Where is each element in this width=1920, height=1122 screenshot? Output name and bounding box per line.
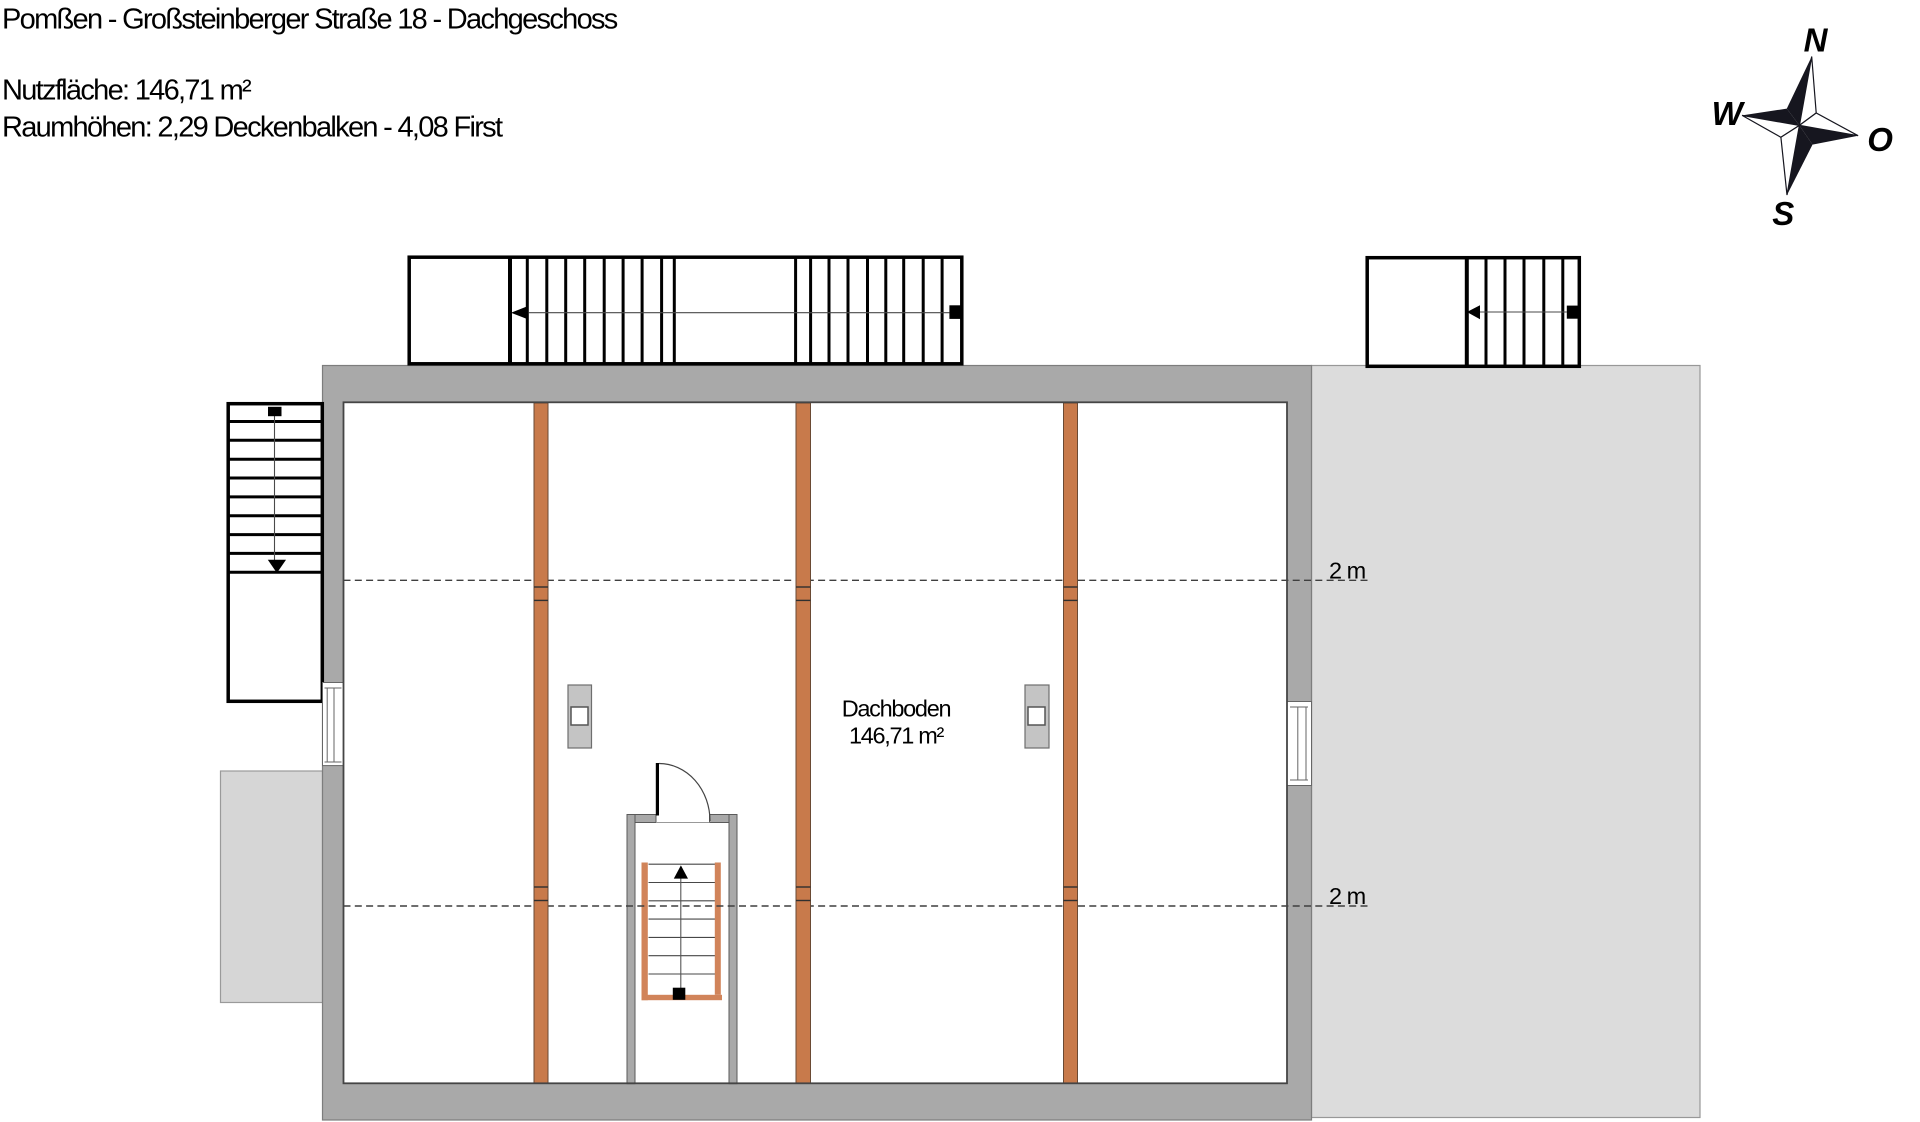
svg-text:2 m: 2 m: [1329, 558, 1366, 584]
svg-text:146,71 m²: 146,71 m²: [849, 722, 945, 748]
svg-text:O: O: [1867, 121, 1893, 158]
svg-text:Dachboden: Dachboden: [842, 696, 951, 722]
svg-text:W: W: [1712, 95, 1746, 132]
svg-text:2 m: 2 m: [1329, 883, 1366, 909]
svg-text:N: N: [1804, 22, 1829, 59]
svg-text:Nutzfläche: 146,71 m²: Nutzfläche: 146,71 m²: [2, 75, 252, 107]
svg-text:Pomßen - Großsteinberger Straß: Pomßen - Großsteinberger Straße 18 - Dac…: [2, 4, 618, 36]
svg-text:S: S: [1772, 195, 1794, 232]
svg-text:Raumhöhen: 2,29 Deckenbalken -: Raumhöhen: 2,29 Deckenbalken - 4,08 Firs…: [2, 112, 503, 144]
